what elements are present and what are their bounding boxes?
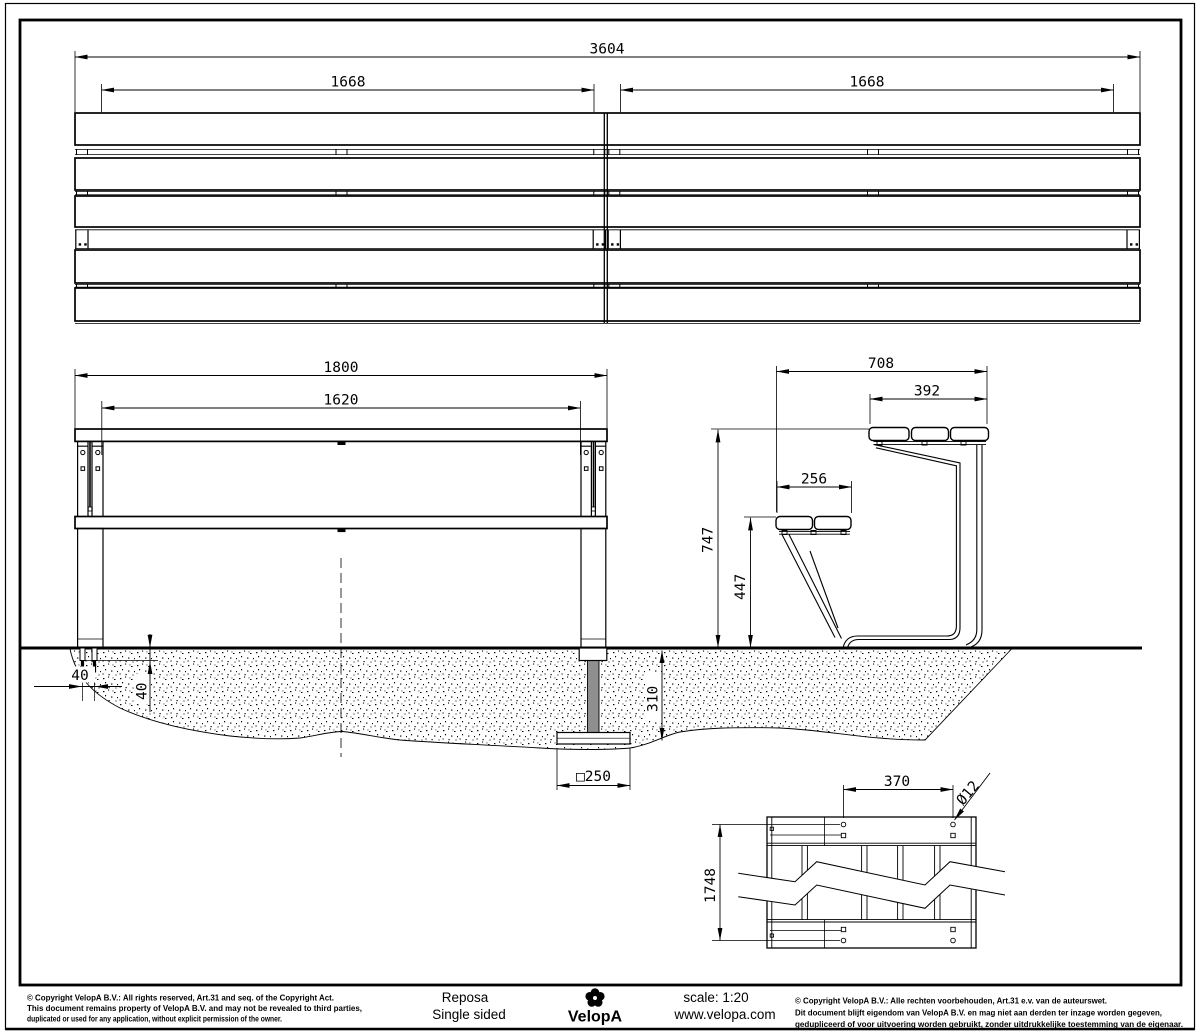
dim-text-747: 747 (701, 527, 717, 553)
velopa-flower-icon (585, 988, 604, 1007)
front-right-leg (581, 441, 606, 648)
drawing-canvas: 3604 1668 1668 (0, 0, 1200, 1033)
dim-text-sq250: □250 (576, 769, 611, 785)
break-region (738, 862, 1005, 909)
side-view: 708 392 256 747 447 (701, 356, 989, 648)
copyright-en-line2: This document remains property of VelopA… (27, 1004, 362, 1013)
front-backrest-rail (75, 429, 607, 441)
copyright-dutch: © Copyright VelopA B.V.: Alle rechten vo… (795, 997, 1183, 1030)
copyright-english: © Copyright VelopA B.V.: All rights rese… (27, 994, 362, 1024)
dim-text-1800: 1800 (324, 360, 359, 376)
dim-text-dia12: Ø12 (954, 778, 983, 808)
dim-backrest-depth: 392 (870, 384, 987, 425)
top-view: 3604 1668 1668 (75, 42, 1140, 324)
dim-overall-depth: 708 (777, 356, 988, 512)
website: www.velopa.com (673, 1007, 775, 1022)
scale-label: scale: 1:20 (683, 990, 748, 1005)
dim-text-392: 392 (914, 384, 940, 400)
drawing-frame (20, 20, 1181, 985)
dim-text-3604: 3604 (590, 42, 625, 58)
dim-right-module-span: 1668 (621, 75, 1114, 113)
copyright-en-line1: © Copyright VelopA B.V.: All rights rese… (27, 994, 334, 1003)
copyright-nl-line2: Dit document blijft eigendom van VelopA … (795, 1009, 1162, 1018)
dim-text-708: 708 (868, 356, 894, 372)
side-seat-slats (776, 517, 851, 535)
dim-text-256: 256 (801, 472, 827, 488)
dim-overall-length: 3604 (75, 42, 1140, 113)
dim-leg-spacing: 1620 (102, 393, 581, 456)
product-variant: Single sided (432, 1007, 506, 1022)
dim-seat-depth: 256 (777, 472, 852, 514)
bottom-view: 370 Ø12 1748 (703, 773, 1005, 948)
product-title: Reposa Single sided (432, 990, 506, 1022)
copyright-nl-line3: gedupliceerd of voor uitvoering worden g… (795, 1020, 1183, 1029)
anchor-box (579, 648, 607, 661)
title-block: © Copyright VelopA B.V.: All rights rese… (27, 988, 1183, 1029)
dim-hole-diameter: Ø12 (954, 773, 990, 820)
buried-post (588, 650, 600, 733)
brand-logo: VelopA (568, 988, 623, 1025)
copyright-nl-line1: © Copyright VelopA B.V.: Alle rechten vo… (795, 997, 1107, 1006)
dim-text-1748: 1748 (703, 868, 719, 903)
dim-text-370: 370 (884, 774, 910, 790)
front-centre-clamp-top (338, 441, 346, 445)
copyright-en-line3: duplicated or used for any application, … (27, 1015, 282, 1024)
side-backrest-slats (869, 428, 989, 446)
brand-name: VelopA (568, 1009, 623, 1026)
dim-text-40-offset: 40 (71, 668, 88, 684)
front-centre-clamp-seat (338, 529, 346, 533)
dim-text-1668-left: 1668 (331, 75, 366, 91)
dim-text-447: 447 (733, 574, 749, 600)
dim-hole-spacing: 370 (844, 774, 954, 818)
product-name: Reposa (442, 990, 489, 1005)
scale-and-site: scale: 1:20 www.velopa.com (673, 990, 775, 1022)
dim-text-310: 310 (646, 686, 662, 712)
bottom-view-frame (738, 817, 1005, 948)
dim-text-40-depth: 40 (135, 683, 151, 700)
front-left-leg (78, 441, 103, 648)
dim-seat-height: 447 (733, 517, 776, 648)
dim-text-1620: 1620 (324, 393, 359, 409)
front-seat-rail (75, 517, 607, 529)
dim-base-plate: □250 (557, 748, 630, 790)
ground-fill (70, 649, 1012, 750)
drawing-sheet: 3604 1668 1668 (0, 0, 1200, 1033)
dim-text-1668-right: 1668 (850, 75, 885, 91)
dim-backrest-height: 747 (701, 429, 870, 648)
dim-left-module-span: 1668 (102, 75, 595, 113)
